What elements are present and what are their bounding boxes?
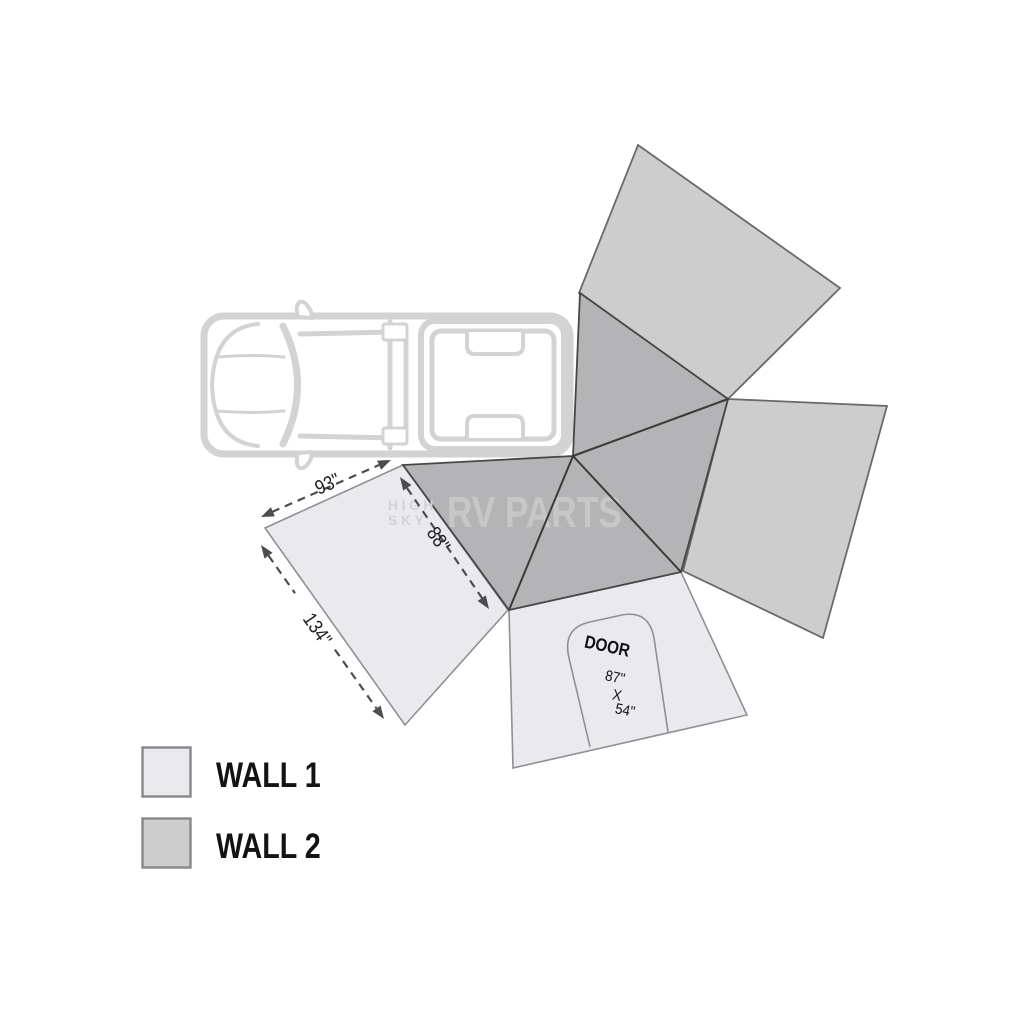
vehicle-top-view xyxy=(204,302,570,468)
dimension-134-arrow-bottom xyxy=(372,706,384,720)
dimension-134-arrow-top xyxy=(261,545,273,559)
wall2-swatch xyxy=(141,817,193,869)
watermark-high: HIGH xyxy=(388,497,437,513)
awning-wall-kit-diagram: HIGH SKY RV PARTS DOOR 87" X 54" 93" xyxy=(0,0,1024,1024)
dimension-93-arrow-right xyxy=(377,460,391,470)
vehicle-rear-window-top xyxy=(383,324,407,340)
watermark-sky: SKY xyxy=(388,512,427,528)
vehicle-mirror-top xyxy=(297,302,312,318)
dimension-93-arrow-left xyxy=(261,507,275,517)
vehicle-hood-line-top xyxy=(218,356,284,358)
vehicle-mirror-bottom xyxy=(297,452,312,468)
diagram-canvas: HIGH SKY RV PARTS DOOR 87" X 54" 93" xyxy=(0,0,1024,1024)
wall1-swatch xyxy=(141,746,193,798)
watermark-brand: RV PARTS xyxy=(447,488,622,537)
vehicle-rear-window-bottom xyxy=(383,428,407,444)
vehicle-wheel-well-top xyxy=(467,332,523,354)
wall2-swatch-rect xyxy=(143,819,191,868)
wall1-swatch-rect xyxy=(143,748,191,797)
vehicle-hood-line-bottom xyxy=(218,411,284,413)
vehicle-wheel-well-bottom xyxy=(467,416,523,438)
legend-label-wall1: WALL 1 xyxy=(216,758,321,793)
legend-label-wall2: WALL 2 xyxy=(216,829,321,864)
